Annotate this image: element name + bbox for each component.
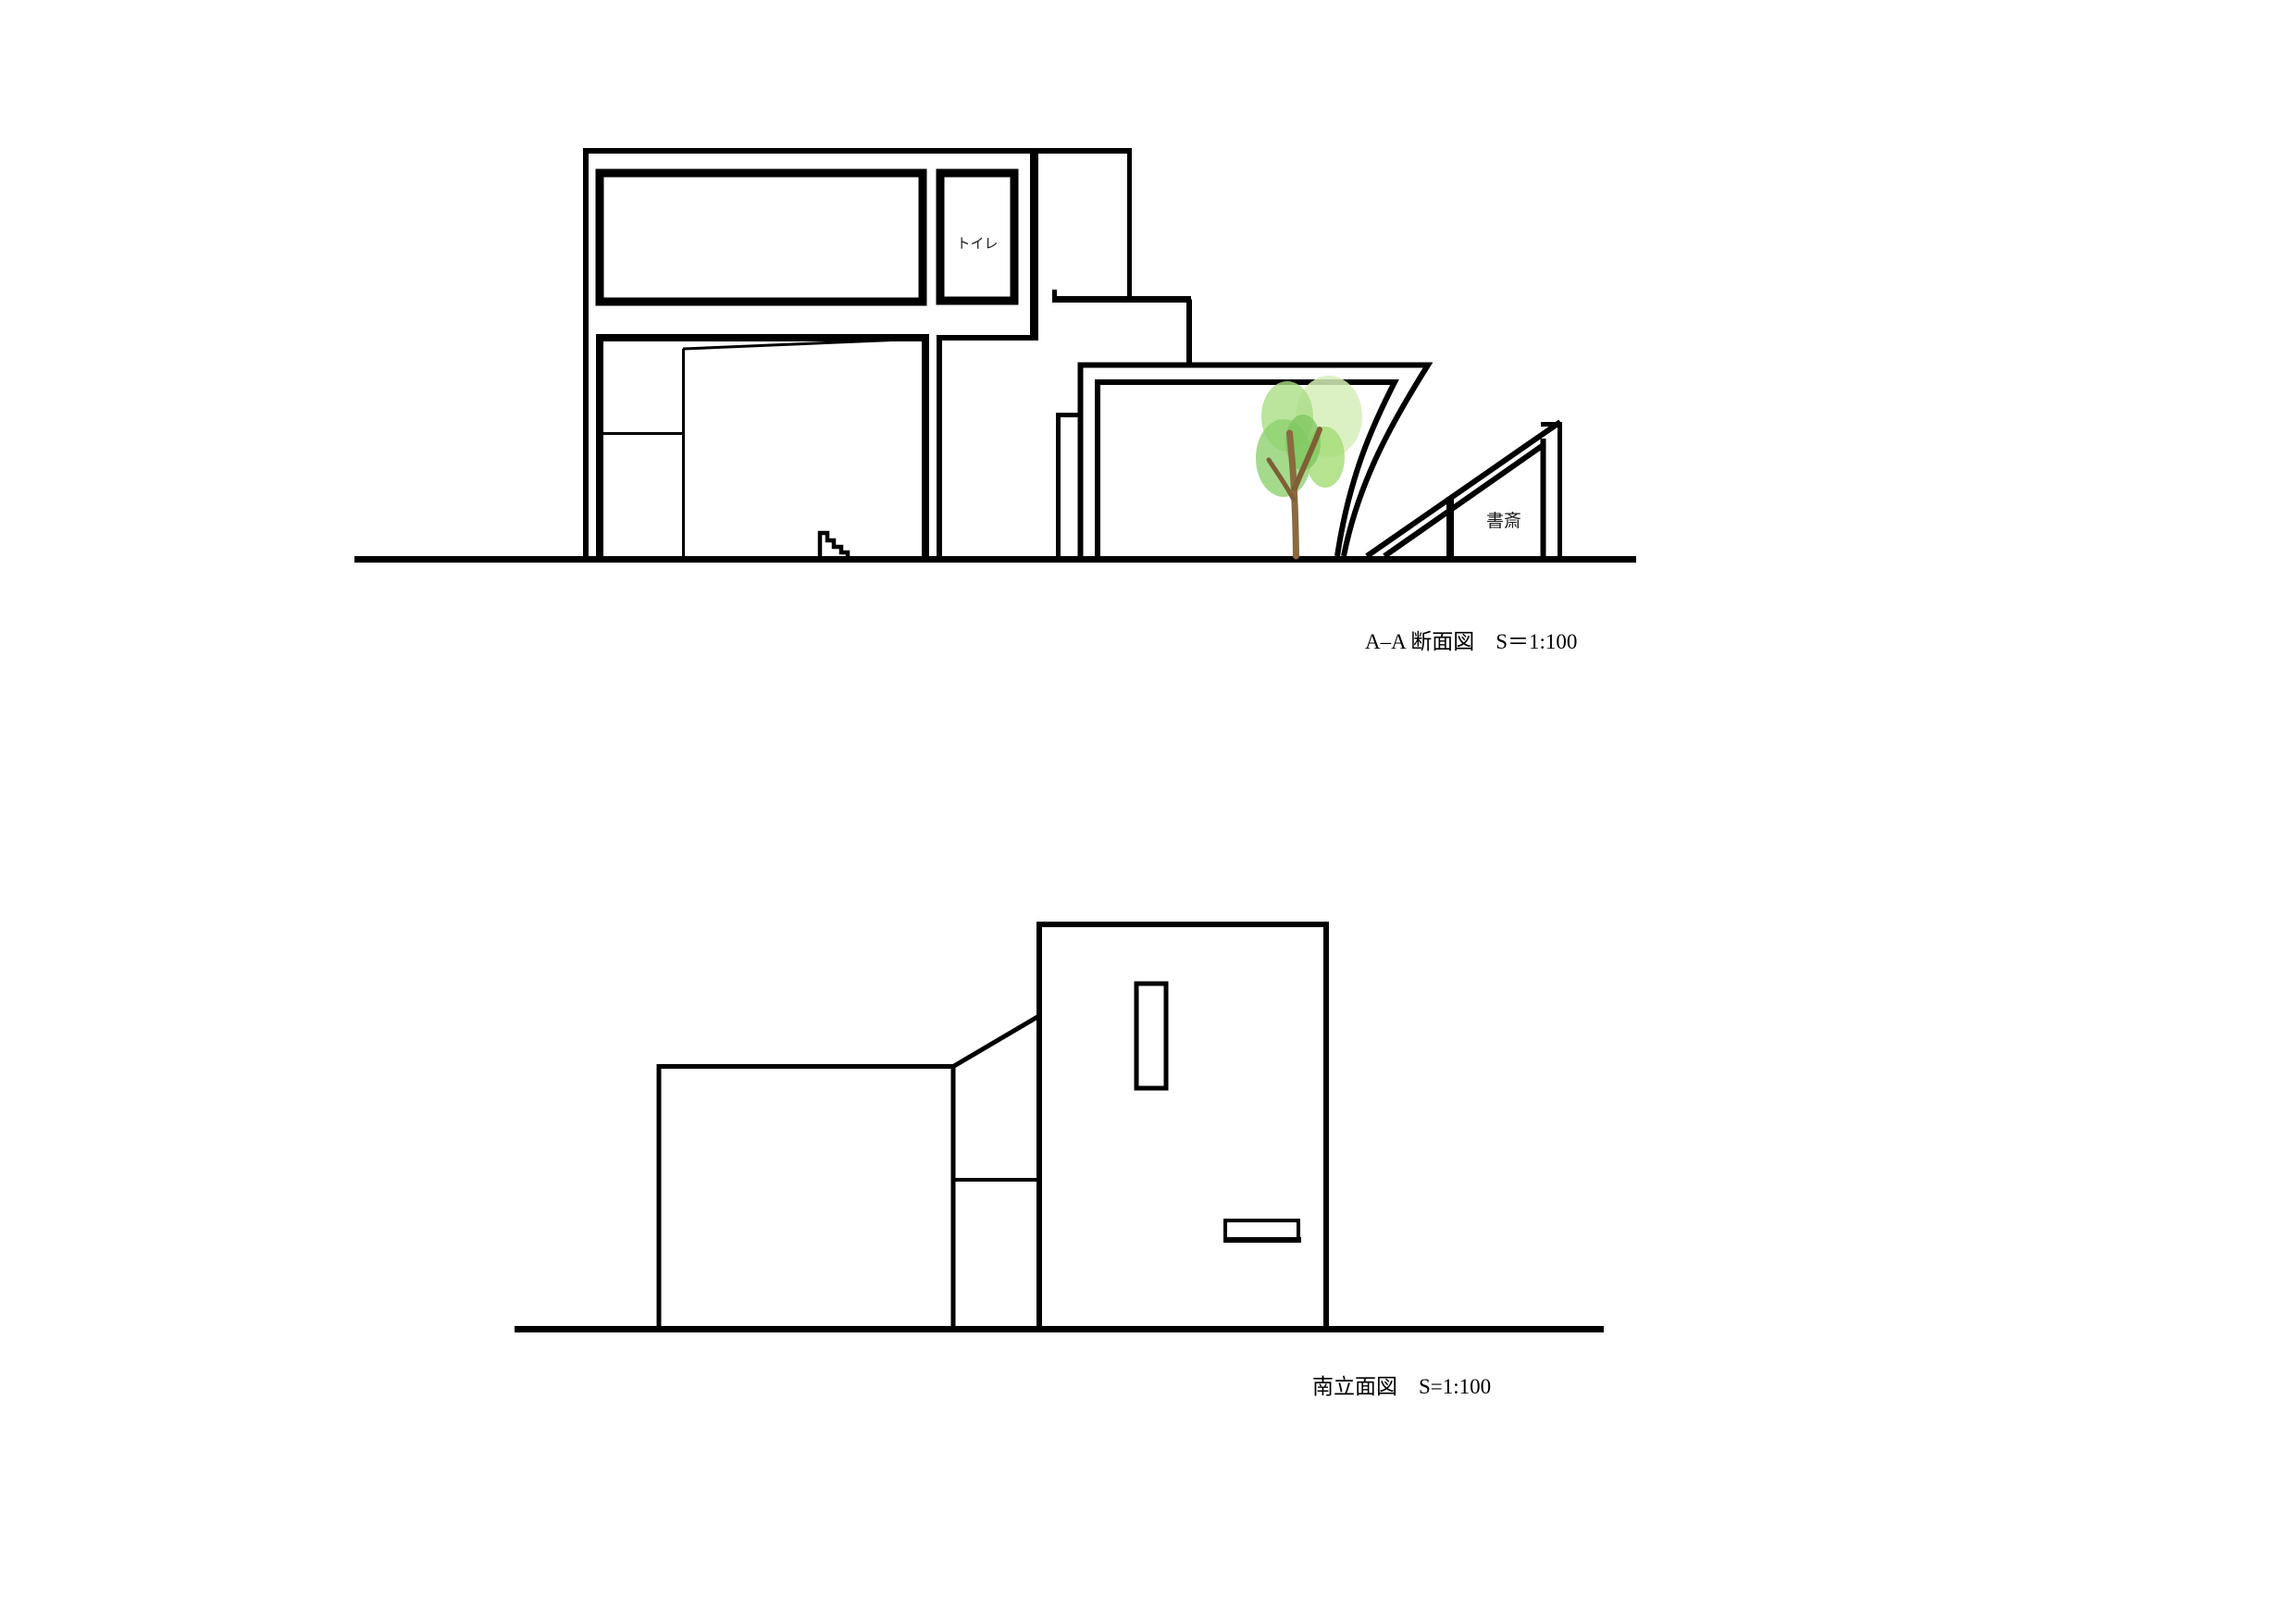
slit-window bbox=[1136, 984, 1166, 1088]
toilet-room-label: トイレ bbox=[956, 236, 998, 252]
section-room-1f bbox=[600, 338, 1035, 556]
elevation-tall-volume bbox=[1039, 924, 1326, 1326]
elevation-caption: 南立面図 S=1:100 bbox=[1312, 1375, 1491, 1398]
section-partition-lines bbox=[598, 339, 925, 556]
lower-window bbox=[1223, 1220, 1301, 1240]
section-building-outline bbox=[583, 148, 1132, 556]
study-ramp bbox=[1367, 422, 1562, 556]
stair-icon bbox=[820, 533, 848, 558]
elevation-drawing: 南立面図 S=1:100 bbox=[515, 924, 1604, 1398]
courtyard-step-block bbox=[1059, 415, 1081, 557]
elevation-left-volume bbox=[659, 1067, 953, 1327]
section-step-profile bbox=[1052, 290, 1191, 365]
garden-tree bbox=[1256, 376, 1362, 556]
study-room-label: 書斎 bbox=[1486, 511, 1521, 531]
section-room-2f bbox=[600, 173, 923, 302]
section-drawing: トイレ 書斎 A–A 断面図 S＝1:100 bbox=[354, 148, 1636, 653]
elevation-middle-volume bbox=[953, 1017, 1038, 1180]
section-caption: A–A 断面図 S＝1:100 bbox=[1365, 630, 1577, 653]
drawing-sheet: トイレ 書斎 A–A 断面図 S＝1:100 南立面図 S=1:100 bbox=[0, 0, 2296, 1623]
courtyard-wall-outer bbox=[1081, 365, 1429, 557]
architectural-drawings-canvas: トイレ 書斎 A–A 断面図 S＝1:100 南立面図 S=1:100 bbox=[0, 0, 2296, 1623]
